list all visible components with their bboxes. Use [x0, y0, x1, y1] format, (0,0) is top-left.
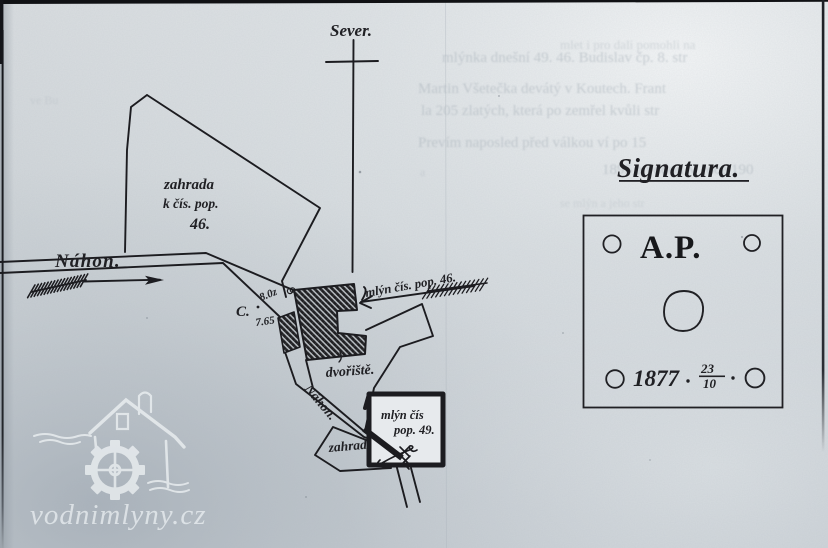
svg-text:se mlýn a jeho str: se mlýn a jeho str [560, 196, 645, 210]
svg-text:pop. 49.: pop. 49. [393, 423, 435, 437]
svg-text:Signatura.: Signatura. [617, 153, 740, 183]
svg-text:A.P.: A.P. [640, 230, 701, 266]
svg-text:46.: 46. [189, 216, 210, 233]
svg-text:Náhon.: Náhon. [54, 251, 121, 272]
svg-text:la 205 zlatých, která po zemře: la 205 zlatých, která po zemřel kvůli st… [421, 103, 659, 119]
svg-text:vodnimlyny.cz: vodnimlyny.cz [30, 499, 206, 531]
svg-text:a: a [420, 165, 426, 179]
svg-text:ve Bu: ve Bu [30, 93, 58, 107]
svg-text:Martin Všetečka devátý v Koute: Martin Všetečka devátý v Koutech. Frant [418, 81, 667, 97]
svg-text:23: 23 [700, 361, 715, 376]
svg-text:mlýn čís: mlýn čís [381, 408, 424, 422]
svg-text:10: 10 [703, 376, 717, 391]
svg-text:mlýnka dnešní 49. 46. Budislav: mlýnka dnešní 49. 46. Budislav čp. 8. st… [442, 50, 687, 66]
svg-text:1877: 1877 [633, 366, 681, 391]
svg-text:zahrada: zahrada [163, 177, 215, 193]
svg-text:C.: C. [236, 304, 250, 320]
svg-text:Prevím naposled před válkou ví: Prevím naposled před válkou ví po 15 [418, 135, 646, 151]
svg-text:Sever.: Sever. [330, 21, 372, 40]
svg-text:k čís. pop.: k čís. pop. [163, 196, 219, 211]
